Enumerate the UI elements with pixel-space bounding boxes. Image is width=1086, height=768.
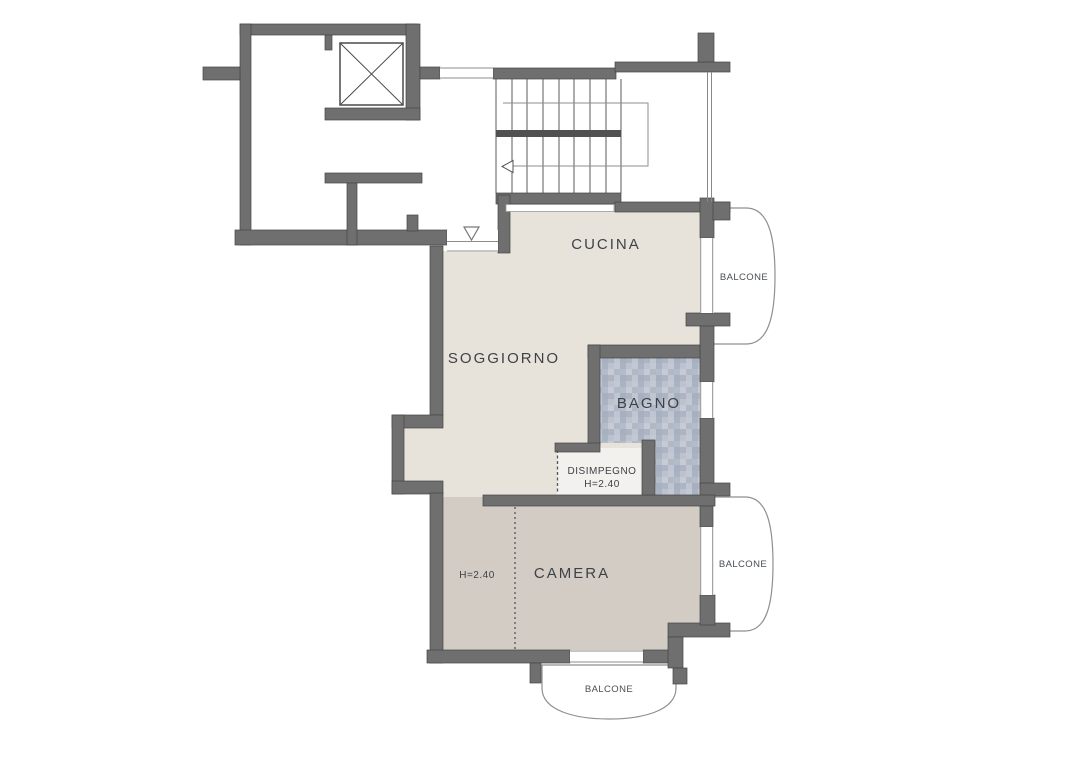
label-cucina: CUCINA xyxy=(571,236,641,253)
label-soggiorno: SOGGIORNO xyxy=(448,350,560,367)
window-bagno xyxy=(700,382,714,418)
stair-direction-arrow-icon xyxy=(502,161,513,173)
label-camera-height: H=2.40 xyxy=(459,570,495,581)
label-balcone-cucina: BALCONE xyxy=(720,272,768,283)
room-fills xyxy=(403,204,700,650)
floor-plan-canvas: CUCINA SOGGIORNO BAGNO DISIMPEGNO H=2.40… xyxy=(0,0,1086,768)
label-balcone-sud: BALCONE xyxy=(585,684,633,695)
soggiorno-niche xyxy=(403,428,443,481)
elevator-shaft xyxy=(340,43,403,105)
door-camera-balcone-sud xyxy=(570,650,643,663)
door-camera-balcone xyxy=(700,527,714,595)
label-bagno: BAGNO xyxy=(617,395,681,412)
glass-partition xyxy=(708,72,712,202)
staircase xyxy=(496,79,648,193)
window-stairs-cucina xyxy=(506,205,614,212)
window-stairwell-top xyxy=(440,67,493,79)
floor-plan-drawing: CUCINA SOGGIORNO BAGNO DISIMPEGNO H=2.40… xyxy=(0,0,1086,768)
door-cucina-balcone xyxy=(700,238,714,313)
label-camera: CAMERA xyxy=(534,565,610,582)
label-balcone-camera: BALCONE xyxy=(719,559,767,570)
label-disimpegno-height: H=2.40 xyxy=(584,479,620,490)
stair-landing-divider xyxy=(496,130,621,137)
label-disimpegno: DISIMPEGNO xyxy=(568,466,637,477)
